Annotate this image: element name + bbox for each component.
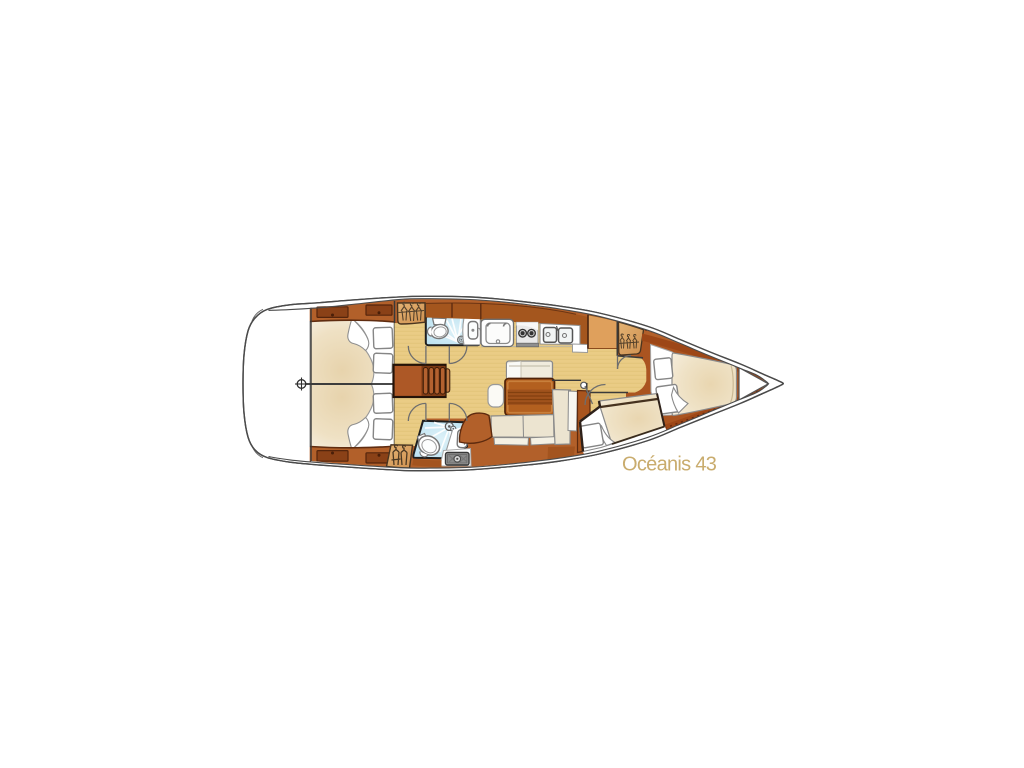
svg-text:Océanis 43: Océanis 43 bbox=[622, 454, 717, 476]
